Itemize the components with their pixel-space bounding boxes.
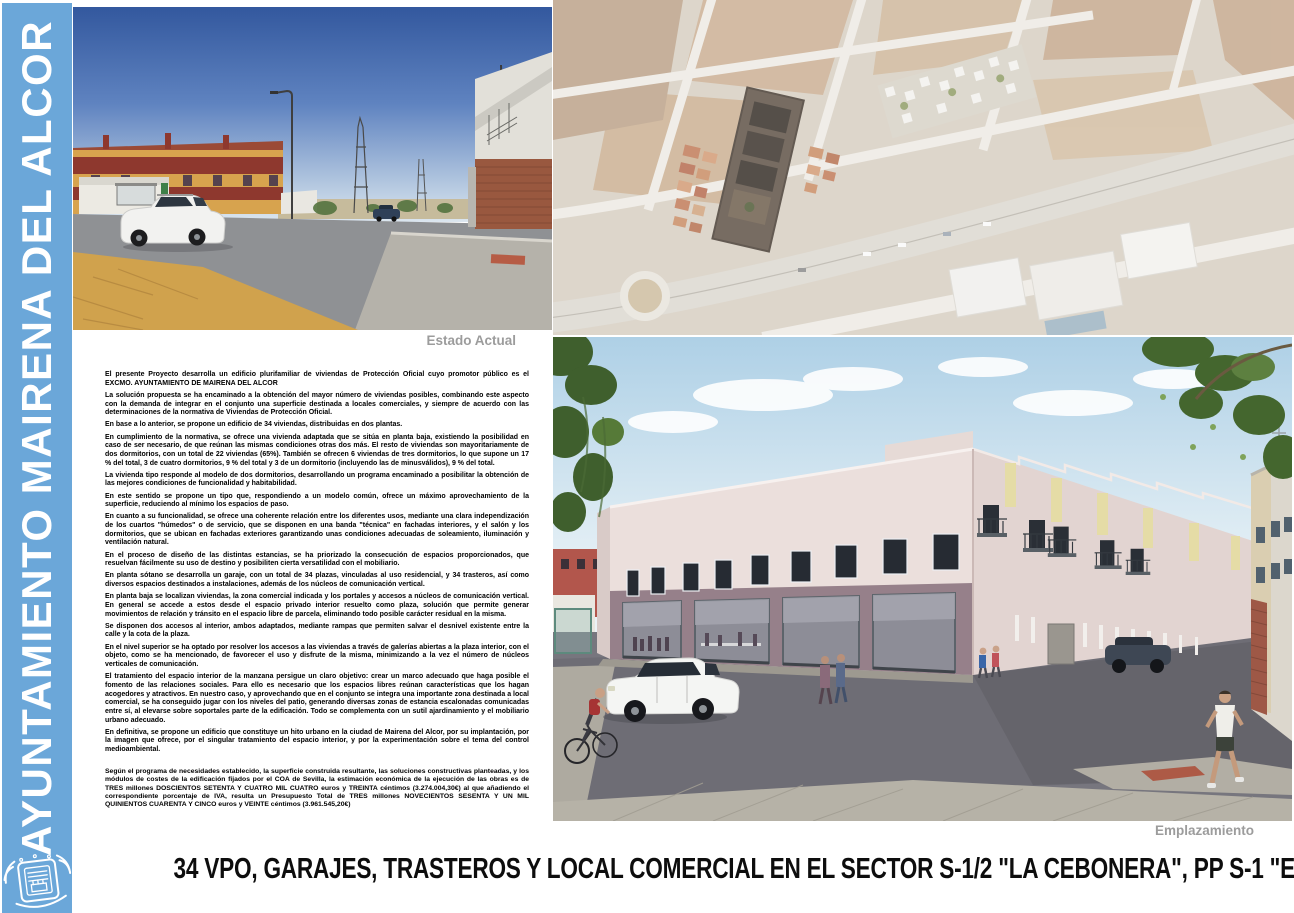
memoria-paragraph: En base a lo anterior, se propone un edi… xyxy=(105,421,529,430)
memoria-paragraph: En definitiva, se propone un edificio qu… xyxy=(105,729,529,755)
project-title: 34 VPO, GARAJES, TRASTEROS Y LOCAL COMER… xyxy=(174,853,1121,886)
memoria-paragraph: La solución propuesta se ha encaminado a… xyxy=(105,392,529,418)
street-scene-illustration xyxy=(73,7,552,330)
memoria-paragraph: Se disponen dos accesos al interior, amb… xyxy=(105,623,529,640)
memoria-paragraph: En planta sótano se desarrolla un garaje… xyxy=(105,572,529,589)
memoria-paragraph: En este sentido se propone un tipo que, … xyxy=(105,493,529,510)
project-description: El presente Proyecto desarrolla un edifi… xyxy=(105,371,529,813)
memoria-paragraph: La vivienda tipo responde al modelo de d… xyxy=(105,472,529,489)
aerial-photo xyxy=(553,0,1294,335)
coat-of-arms-icon xyxy=(0,852,78,912)
memoria-paragraph: El tratamiento del espacio interior de l… xyxy=(105,673,529,725)
memoria-paragraph: En cuanto a su funcionalidad, se ofrece … xyxy=(105,513,529,548)
emplazamiento-render xyxy=(553,337,1292,821)
building-render-illustration xyxy=(553,337,1292,821)
memoria-paragraph: En el nivel superior se ha optado por re… xyxy=(105,644,529,670)
aerial-view-illustration xyxy=(553,0,1294,335)
memoria-paragraph: El presente Proyecto desarrolla un edifi… xyxy=(105,371,529,388)
presentation-board: AYUNTAMIENTO MAIRENA DEL ALCOR xyxy=(0,0,1294,913)
municipality-name: AYUNTAMIENTO MAIRENA DEL ALCOR xyxy=(2,18,72,856)
emplazamiento-caption: Emplazamiento xyxy=(553,823,1292,838)
memoria-paragraph: Según el programa de necesidades estable… xyxy=(105,768,529,810)
estado-actual-caption: Estado Actual xyxy=(73,333,552,348)
memoria-paragraph: En cumplimiento de la normativa, se ofre… xyxy=(105,434,529,469)
memoria-paragraph: En el proceso de diseño de las distintas… xyxy=(105,552,529,569)
estado-actual-photo xyxy=(73,7,552,330)
memoria-paragraph: En planta baja se localizan viviendas, l… xyxy=(105,593,529,619)
